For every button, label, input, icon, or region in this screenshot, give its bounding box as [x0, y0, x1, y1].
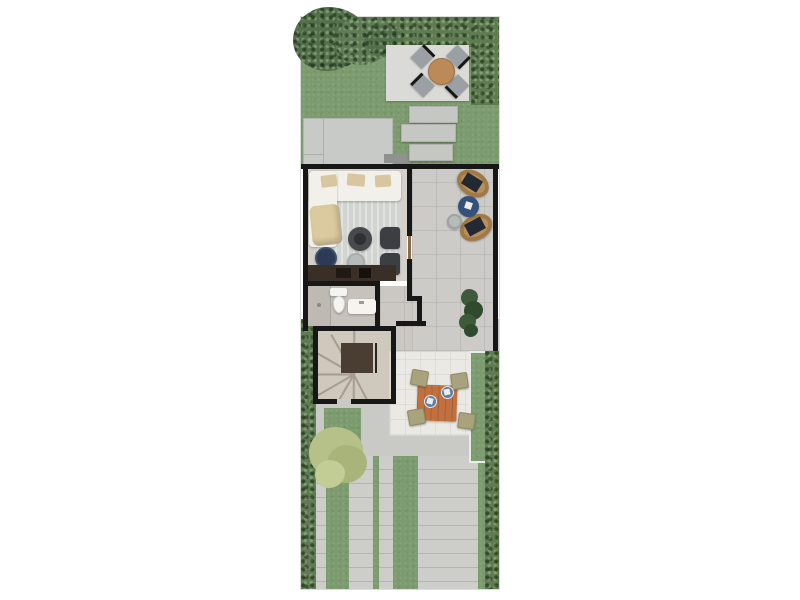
wall-terrace-right [493, 169, 498, 351]
wall-stairs-right [391, 326, 396, 404]
wall-divider-lower [407, 259, 412, 301]
driveway-grass-3 [393, 456, 418, 589]
sofa-pillow-2 [347, 173, 366, 187]
sofa-pillow-3 [375, 174, 392, 187]
kitchen-counter [308, 265, 396, 281]
kitchen-sink [336, 268, 351, 278]
deck-seam-vertical [323, 118, 324, 165]
stepping-stone-1 [409, 106, 458, 123]
stair-landing-block [341, 343, 373, 373]
garden-table [428, 58, 455, 85]
stepping-stone-3 [409, 144, 453, 161]
stepping-stone-2 [401, 124, 456, 142]
stair-handrail [375, 343, 377, 373]
dining-chair-se [457, 412, 476, 430]
toilet-tank [330, 288, 347, 296]
wall-hall-bottom-stub [396, 321, 426, 326]
lounge-chair [309, 204, 343, 247]
driveway-paver-4 [418, 456, 478, 589]
stair-step-line [353, 374, 376, 399]
vanity-faucet [359, 301, 364, 304]
terrace-side-table [447, 214, 462, 229]
shower-drain [317, 303, 321, 307]
coffee-table-tray [354, 233, 366, 245]
floor-plan-image [0, 0, 800, 600]
sofa-pillow-1 [320, 174, 337, 188]
napkin-2 [443, 388, 450, 395]
right-hedge [485, 351, 499, 589]
wall-stairs-bottom-right [351, 399, 396, 404]
deck-seam-horizontal [303, 154, 323, 155]
floor-plan [300, 16, 500, 590]
dining-chair-sw [407, 408, 427, 427]
kitchen-hob [359, 268, 371, 278]
back-doormat [384, 154, 409, 163]
backyard-right-hedge [471, 19, 499, 105]
wood-deck [303, 118, 393, 165]
dining-chair-ne [450, 372, 469, 390]
dining-chair-nw [410, 369, 430, 388]
driveway-paver-3 [379, 456, 393, 589]
wall-divider-upper [407, 164, 412, 236]
stair-step-line [318, 374, 354, 398]
terrace-door [408, 236, 411, 259]
wall-stairs-bottom-left [313, 399, 337, 404]
stair-step-line [318, 374, 354, 376]
armchair-1 [380, 227, 400, 249]
